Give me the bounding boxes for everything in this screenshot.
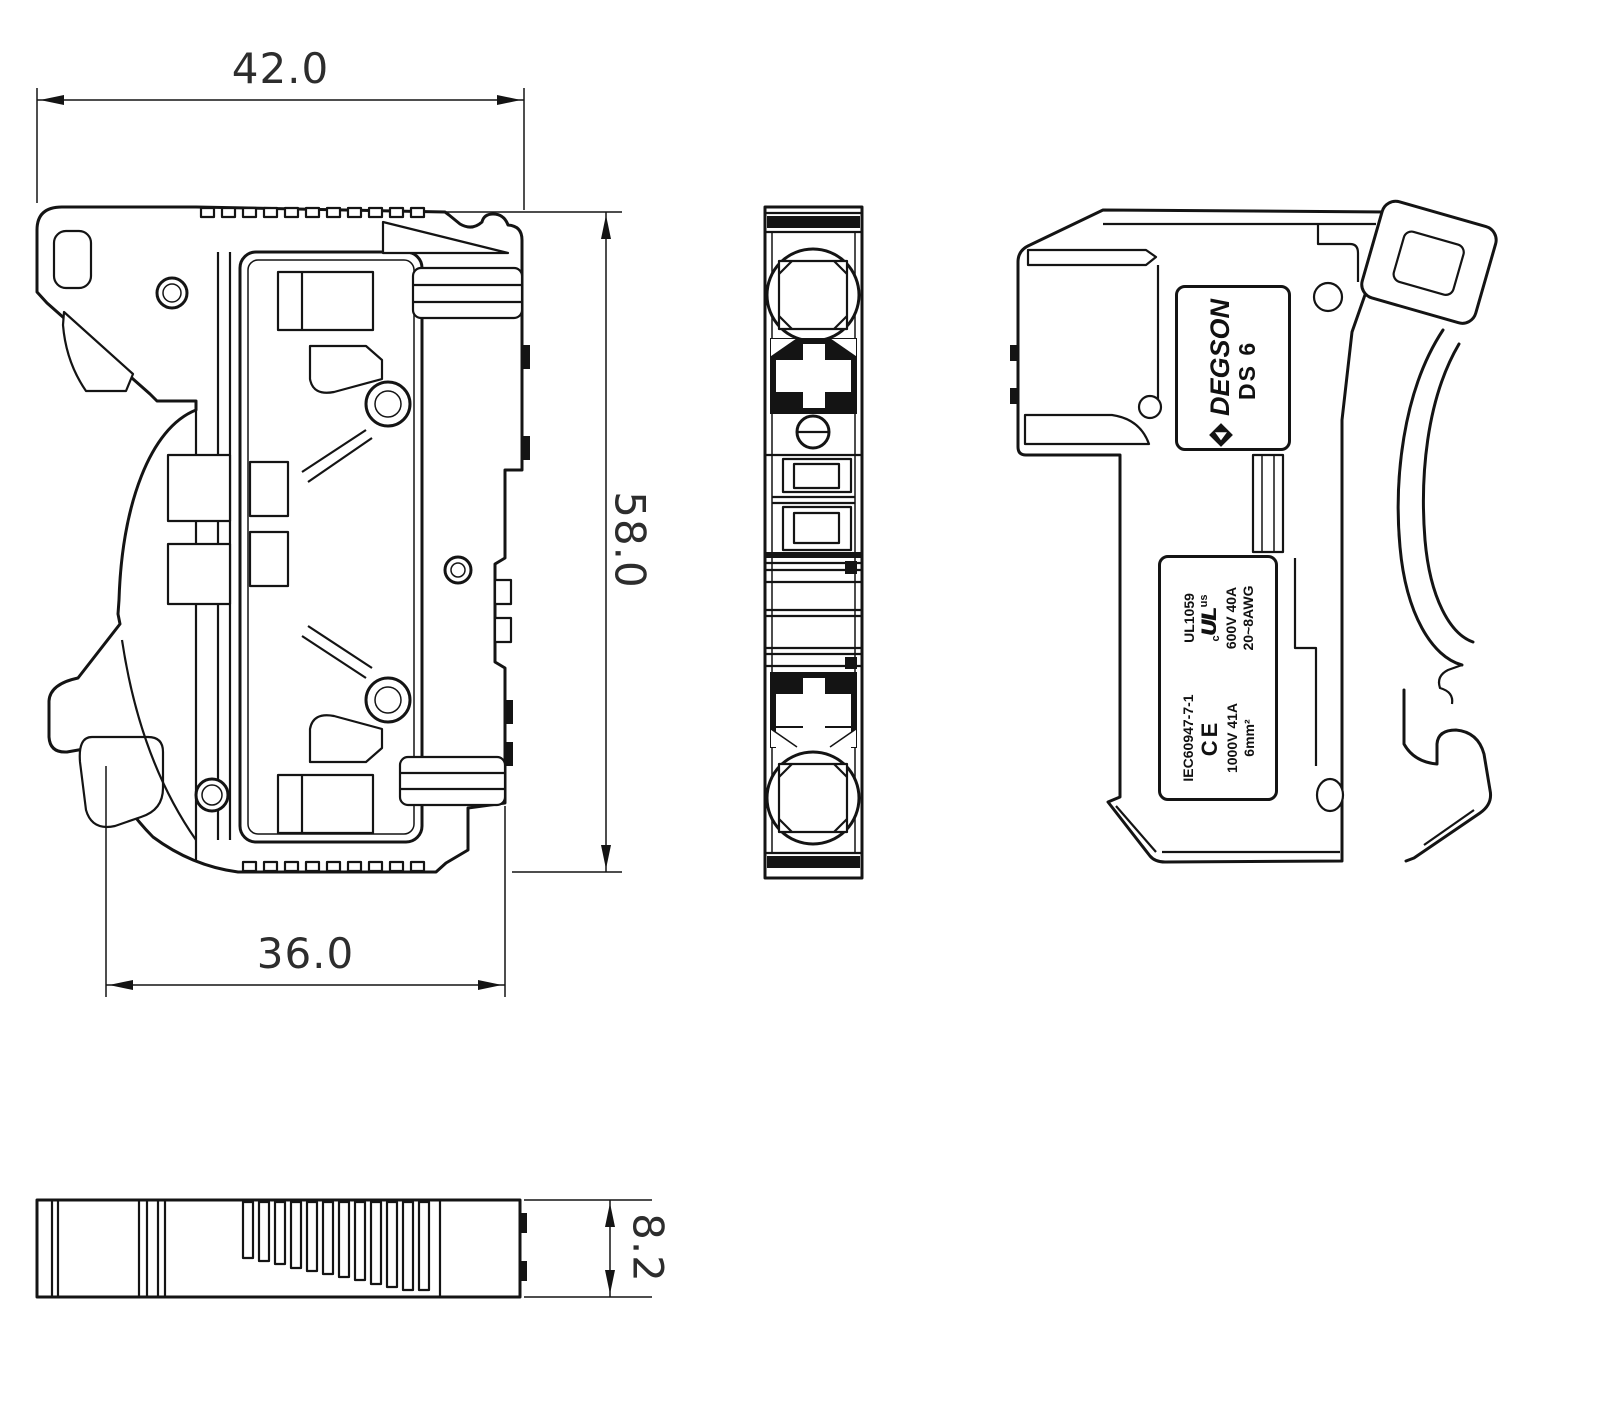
dimension-overall-height: 58.0 xyxy=(606,491,655,589)
ul-standard: UL1059 xyxy=(1181,593,1197,643)
section-view xyxy=(37,207,530,872)
dimension-top-width: 42.0 xyxy=(37,44,524,93)
technical-drawing-canvas: 42.0 58.0 36.0 8.2 DEGSON DS 6 IEC60947-… xyxy=(0,0,1600,1422)
iec-cert-block: IEC60947-7-1 CE 1000V 41A 6mm² xyxy=(1161,678,1275,798)
dimension-bottom-width: 36.0 xyxy=(106,929,505,978)
drawing-linework xyxy=(0,0,1600,1422)
upper-cross-recess xyxy=(770,338,857,414)
bottom-view xyxy=(37,1200,527,1297)
lower-cross-recess xyxy=(770,672,857,760)
top-serration xyxy=(201,208,424,217)
ul-rating: 600V 40A xyxy=(1223,587,1239,649)
brand-name: DEGSON xyxy=(1205,299,1236,416)
degson-diamond-icon xyxy=(1208,422,1234,448)
bottom-serration xyxy=(243,862,424,871)
rail-clip-flag xyxy=(1358,198,1499,327)
iec-standard: IEC60947-7-1 xyxy=(1180,694,1196,781)
iec-wire-size: 6mm² xyxy=(1241,719,1257,756)
cul-us-mark-icon: c UL us xyxy=(1198,595,1222,642)
iec-rating: 1000V 41A xyxy=(1224,703,1240,773)
dimension-rail-depth: 8.2 xyxy=(624,1213,673,1283)
brand-label-plate: DEGSON DS 6 xyxy=(1175,285,1291,451)
ul-wire-size: 20~8AWG xyxy=(1240,586,1256,651)
certification-label-plate: IEC60947-7-1 CE 1000V 41A 6mm² UL1059 c … xyxy=(1158,555,1278,801)
front-view xyxy=(765,207,862,878)
ul-cert-block: UL1059 c UL us 600V 40A 20~8AWG xyxy=(1161,558,1275,678)
ce-mark-icon: CE xyxy=(1197,720,1223,757)
brand-model: DS 6 xyxy=(1234,288,1261,448)
